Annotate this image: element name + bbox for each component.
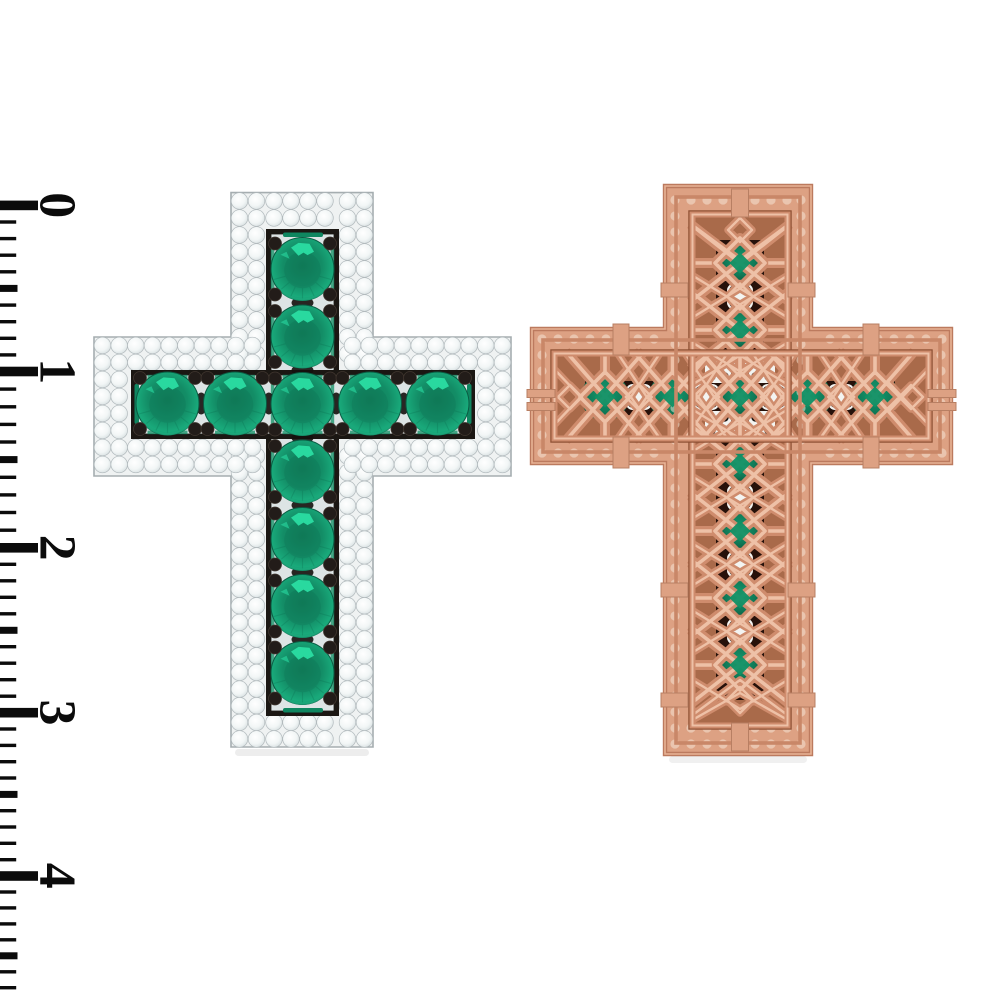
svg-text:3: 3 (29, 700, 86, 726)
svg-text:4: 4 (29, 863, 86, 889)
svg-text:2: 2 (29, 535, 86, 561)
svg-text:0: 0 (29, 192, 86, 218)
svg-text:1: 1 (29, 358, 86, 384)
